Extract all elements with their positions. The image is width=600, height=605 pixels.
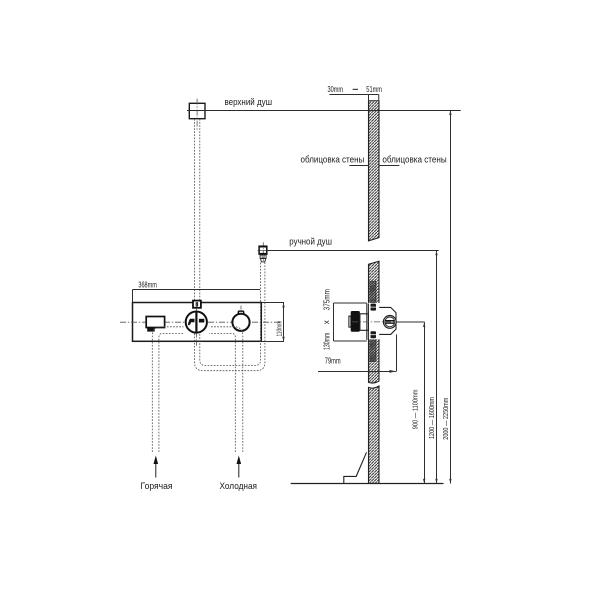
svg-text:облицовка стены: облицовка стены (382, 154, 446, 164)
svg-text:Горячая: Горячая (141, 481, 173, 491)
svg-text:облицовка стены: облицовка стены (301, 154, 365, 164)
svg-text:Холодная: Холодная (220, 481, 258, 491)
svg-text:375mm: 375mm (322, 289, 331, 311)
svg-text:30mm: 30mm (328, 85, 344, 94)
svg-text:x: x (322, 320, 331, 324)
svg-text:900 — 1100mm: 900 — 1100mm (410, 390, 419, 430)
svg-text:ручной душ: ручной душ (289, 237, 332, 247)
svg-text:130mm: 130mm (323, 332, 332, 350)
svg-text:110mm: 110mm (274, 321, 283, 337)
svg-text:51mm: 51mm (366, 85, 382, 94)
svg-text:1200 — 1600mm: 1200 — 1600mm (427, 397, 436, 439)
svg-text:368mm: 368mm (138, 281, 157, 290)
svg-text:2000 — 2250mm: 2000 — 2250mm (441, 398, 450, 440)
svg-text:79mm: 79mm (325, 357, 341, 366)
svg-text:верхний душ: верхний душ (225, 97, 273, 107)
